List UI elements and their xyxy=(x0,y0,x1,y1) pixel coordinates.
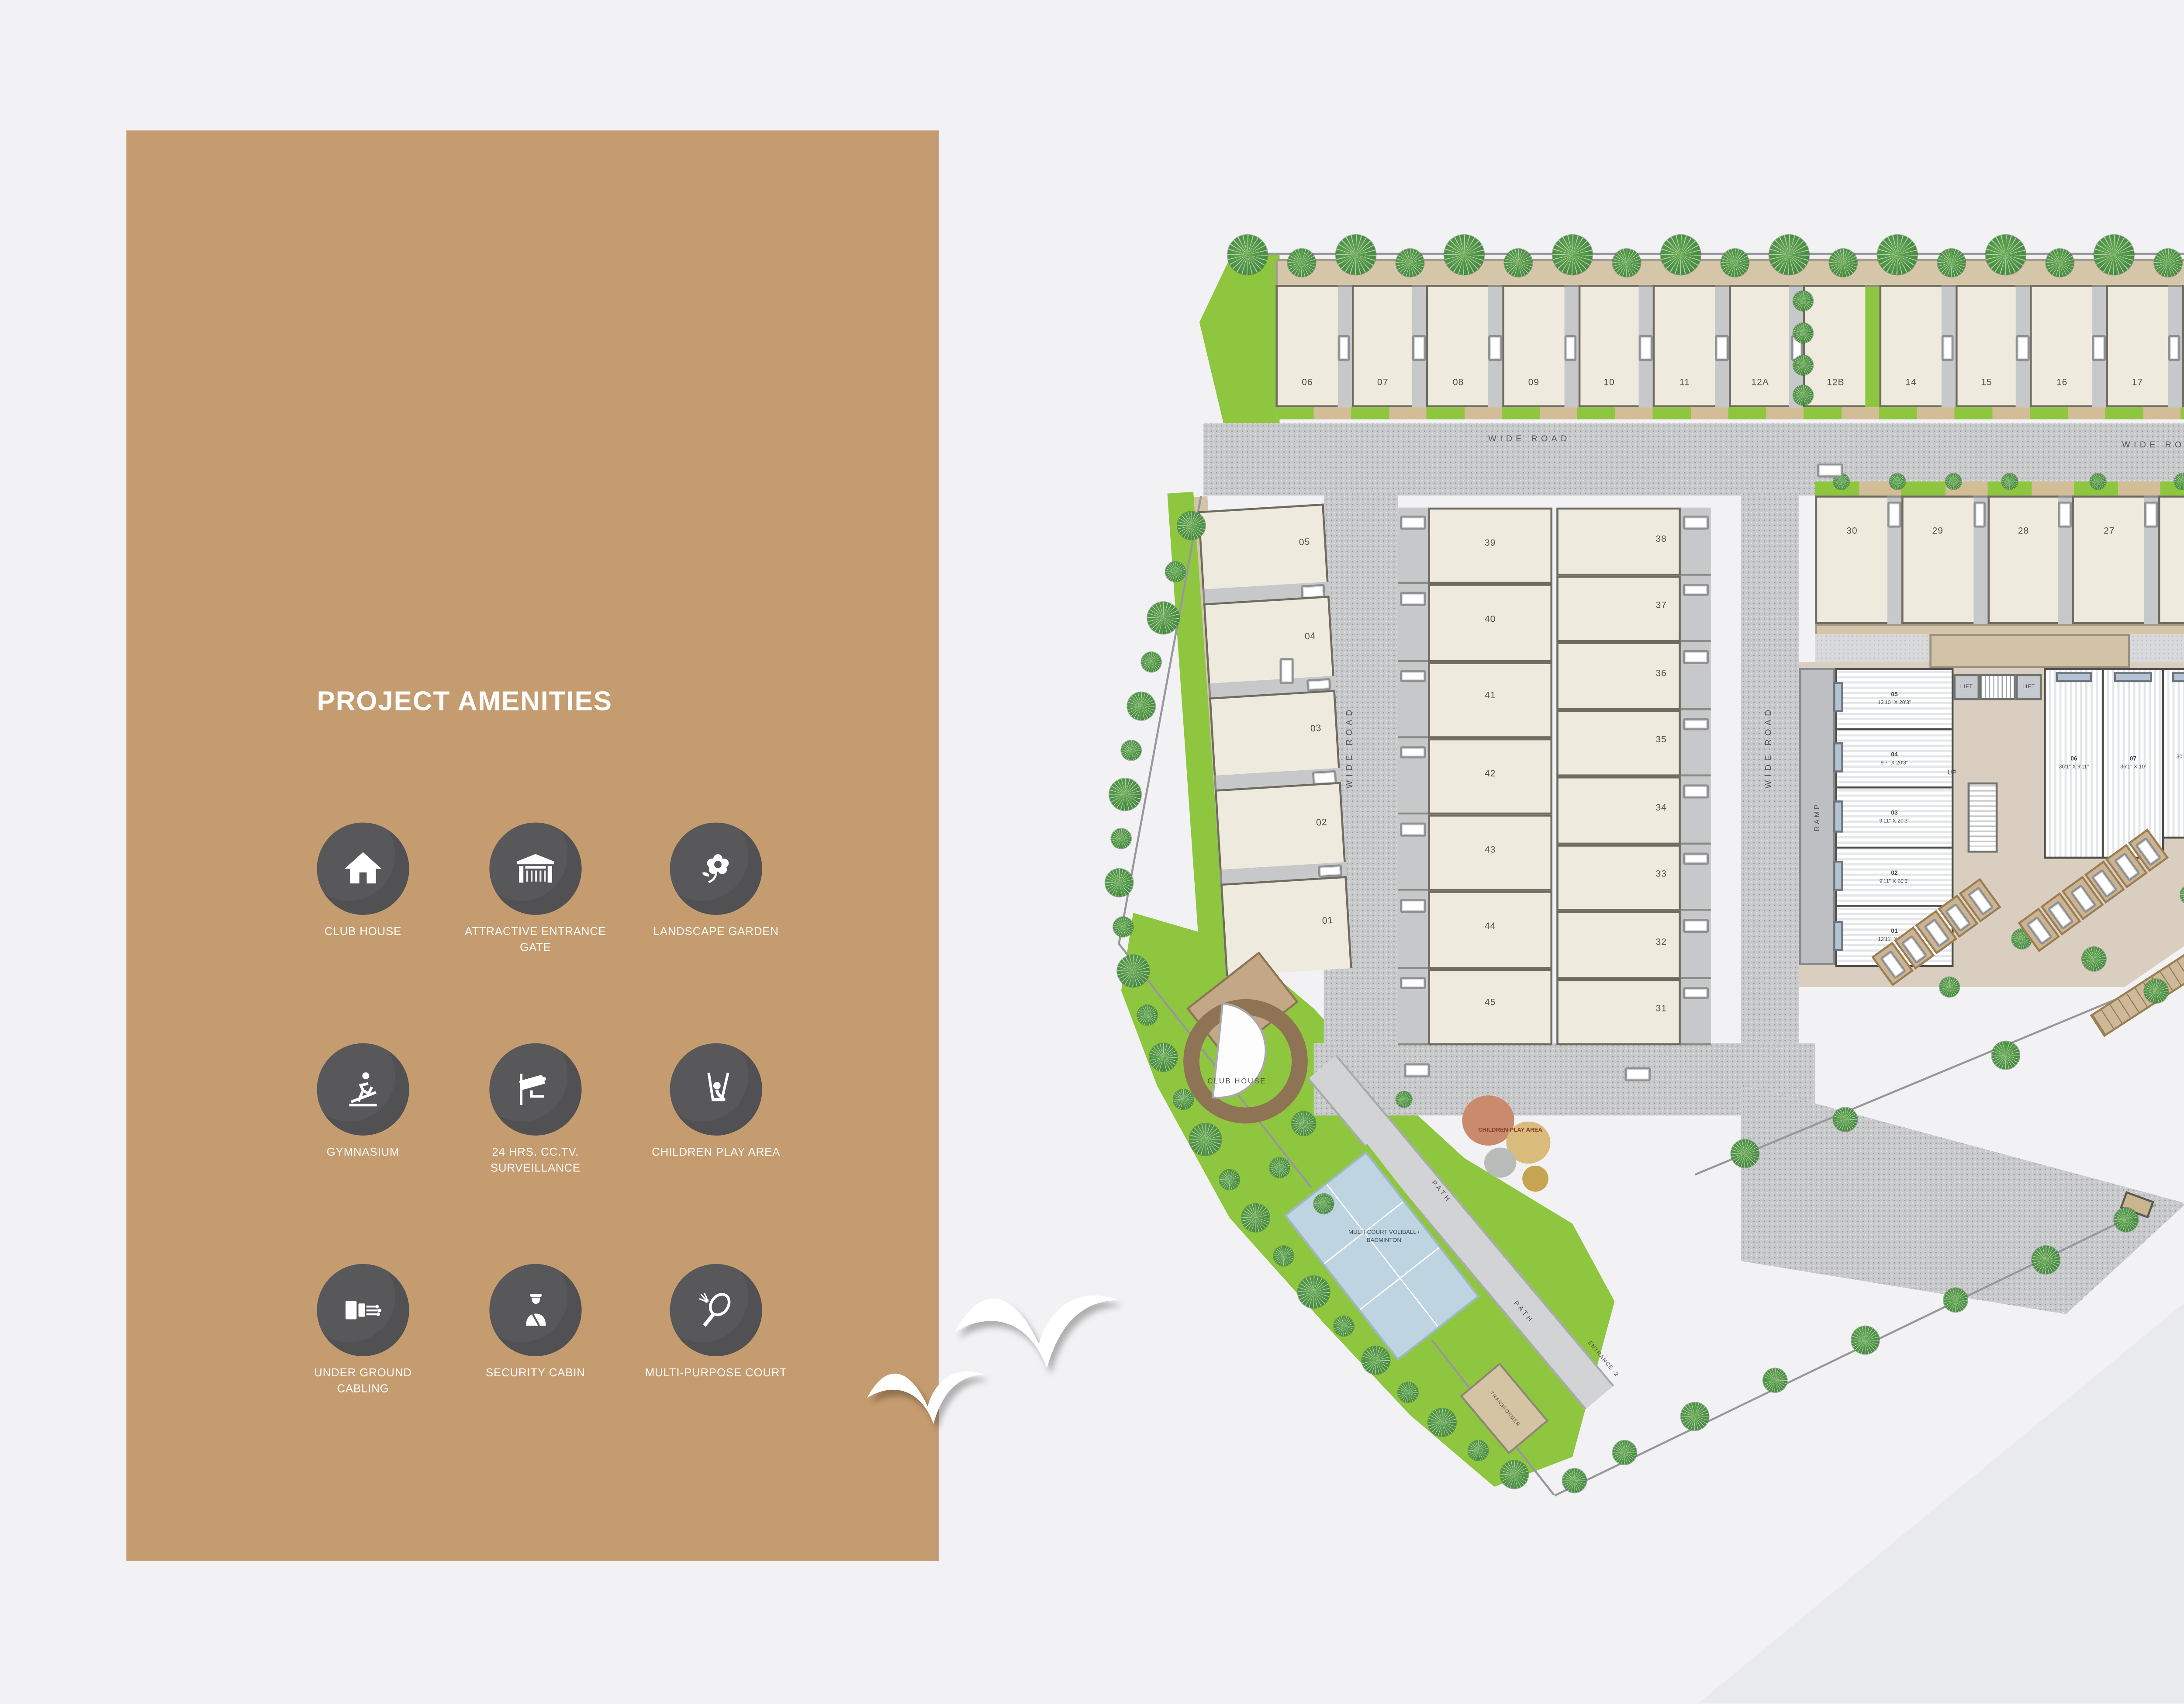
car-icon xyxy=(1280,658,1293,683)
tree-icon xyxy=(1992,1041,2020,1069)
play-surface xyxy=(1484,1148,1516,1178)
green-strip xyxy=(1199,255,1280,423)
driveway xyxy=(1973,495,1987,624)
tree-icon xyxy=(1113,917,1133,937)
rowhouse-unit: 30 xyxy=(1815,495,1901,624)
car-icon xyxy=(1400,977,1425,990)
unit-number: 32 xyxy=(1655,937,1666,947)
car-icon xyxy=(1683,516,1708,529)
tree-icon xyxy=(1833,1108,1857,1132)
car-icon xyxy=(2070,885,2095,913)
tree-icon xyxy=(1127,692,1155,720)
curb-strip xyxy=(1815,481,2184,495)
unit-number: 07 xyxy=(1353,377,1413,387)
tree-icon xyxy=(1189,1123,1221,1155)
shops-row: 06 36'1" X 9'11" 07 36'1" X 10' 08 30'5"… xyxy=(2044,668,2184,859)
rowhouse-unit: 14 xyxy=(1880,285,1955,407)
tree-icon xyxy=(2032,1246,2060,1274)
tree-icon xyxy=(1889,474,1905,490)
unit-number: 41 xyxy=(1430,691,1551,701)
shop-unit: 05 13'10" X 20'3" xyxy=(1837,670,1952,730)
staircase xyxy=(1980,674,2016,700)
shop-unit: 07 36'1" X 10' xyxy=(2104,668,2164,859)
rowhouse-unit: 39 xyxy=(1398,508,1552,585)
tree-icon xyxy=(2046,249,2074,277)
shop-dimension: 36'1" X 10' xyxy=(2107,765,2159,772)
car-icon xyxy=(1564,335,1577,360)
office-block xyxy=(1929,634,2130,668)
tree-icon xyxy=(1149,1043,1177,1071)
tree-icon xyxy=(1986,235,2026,275)
unit-number: 11 xyxy=(1655,377,1714,387)
car-icon xyxy=(2092,335,2105,360)
unit-number: 16 xyxy=(2032,377,2092,387)
tree-icon xyxy=(1336,235,1376,275)
driveway xyxy=(1941,285,1955,407)
rowhouse-unit: 42 xyxy=(1398,738,1552,815)
unit-number: 43 xyxy=(1430,845,1551,855)
tree-icon xyxy=(1661,235,1701,275)
unit-number: 04 xyxy=(1304,630,1316,641)
driveway xyxy=(1398,661,1428,738)
tree-icon xyxy=(2090,474,2106,490)
tree-icon xyxy=(1681,1403,1709,1430)
tree-icon xyxy=(1504,249,1532,277)
driveway xyxy=(1398,968,1428,1045)
driveway xyxy=(1488,285,1502,407)
shop-dimension: 13'10" X 20'3" xyxy=(1878,700,1911,707)
driveway xyxy=(2144,495,2158,624)
unit-number: 28 xyxy=(1989,526,2059,536)
rowhouse-unit: 45 xyxy=(1398,968,1552,1045)
unit-number: 08 xyxy=(1429,377,1488,387)
driveway xyxy=(1413,285,1427,407)
tree-icon xyxy=(1147,602,1179,634)
tree-icon xyxy=(1141,652,1161,672)
road-bottom xyxy=(1314,1043,1815,1115)
rowhouse-unit: 38 xyxy=(1556,508,1711,575)
rowhouse-unit: 32 xyxy=(1556,911,1711,978)
car-icon xyxy=(1946,903,1971,931)
tree-icon xyxy=(2002,474,2018,490)
driveway xyxy=(2167,285,2181,407)
shop-number: 06 xyxy=(2070,755,2077,763)
driveway xyxy=(2058,495,2072,624)
rowhouse-unit: 01 xyxy=(1220,875,1352,976)
tree-icon xyxy=(1721,249,1749,277)
rowhouse-unit: 37 xyxy=(1556,575,1711,642)
poster-canvas: PROJECT AMENITIES CLUB HOUSE ATTRACTIVE … xyxy=(0,0,2184,1703)
tree-icon xyxy=(1241,1204,1269,1232)
car-icon xyxy=(2017,335,2030,360)
unit-number: 05 xyxy=(1299,537,1310,548)
tree-icon xyxy=(1165,562,1185,582)
tree-icon xyxy=(1769,235,1809,275)
unit-number: 03 xyxy=(1310,723,1322,734)
tree-icon xyxy=(1117,955,1149,987)
tree-icon xyxy=(1793,355,1813,375)
tree-icon xyxy=(1288,249,1316,277)
tree-icon xyxy=(1731,1139,1759,1167)
driveway xyxy=(1887,495,1901,624)
car-icon xyxy=(1683,583,1708,596)
driveway xyxy=(1865,285,1879,407)
car-icon xyxy=(2114,853,2139,881)
unit-number: 38 xyxy=(1655,533,1666,544)
driveway xyxy=(1398,508,1428,585)
tree-icon xyxy=(2154,249,2182,277)
tree-icon xyxy=(1111,828,1131,849)
rowhouse-unit: 07 xyxy=(1351,285,1427,407)
shop-number: 02 xyxy=(1891,868,1897,876)
tree-icon xyxy=(2094,235,2134,275)
driveway xyxy=(1681,642,1711,709)
lift-lobby: LIFT LIFT xyxy=(1953,674,2042,700)
driveway xyxy=(1681,508,1711,575)
tree-icon xyxy=(1946,474,1962,490)
tree-icon xyxy=(1793,323,1813,343)
shop-dimension: 9'11" X 20'3" xyxy=(1880,878,1910,885)
tree-icon xyxy=(1220,1170,1240,1190)
club-house-label: CLUB HOUSE xyxy=(1207,1077,1266,1085)
tree-icon xyxy=(1851,1326,1879,1354)
rowhouse-unit: 11 xyxy=(1653,285,1728,407)
car-icon xyxy=(1488,335,1501,360)
tree-icon xyxy=(1292,1112,1316,1136)
site-plan: 06 07 08 09 10 xyxy=(0,0,2184,1703)
rowhouse-unit: 26 xyxy=(2158,495,2184,624)
rowhouse-unit: 02 xyxy=(1215,783,1347,883)
tree-icon xyxy=(1314,1194,1334,1214)
unit-number: 37 xyxy=(1655,601,1666,611)
shop-number: 05 xyxy=(1891,690,1897,698)
car-icon xyxy=(1683,717,1708,731)
car-icon xyxy=(1683,852,1708,865)
tree-icon xyxy=(1109,779,1141,810)
tree-icon xyxy=(1105,869,1133,897)
rowhouse-unit: 41 xyxy=(1398,661,1552,738)
car-icon xyxy=(2167,335,2181,360)
driveway xyxy=(1398,892,1428,969)
unit-number: 36 xyxy=(1655,668,1666,678)
rowhouse-column-mid-right: 38 37 36 35 34 xyxy=(1556,508,1711,1046)
rowhouse-unit: 44 xyxy=(1398,892,1552,969)
driveway xyxy=(1681,709,1711,776)
rowhouse-unit: 36 xyxy=(1556,642,1711,709)
unit-number: 42 xyxy=(1430,768,1551,778)
unit-number: 15 xyxy=(1957,377,2016,387)
unit-number: 44 xyxy=(1430,921,1551,931)
unit-number: 39 xyxy=(1430,537,1551,547)
car-icon xyxy=(1413,335,1426,360)
tree-icon xyxy=(2114,1208,2138,1232)
rowhouse-unit: 28 xyxy=(1987,495,2072,624)
car-icon xyxy=(1683,784,1708,797)
rowhouse-column-mid-left: 39 40 41 42 43 xyxy=(1398,508,1552,1046)
tree-icon xyxy=(1500,1461,1528,1489)
rowhouse-unit: 17 xyxy=(2106,285,2181,407)
car-icon xyxy=(1400,669,1425,682)
unit-number: 40 xyxy=(1430,614,1551,624)
road-label: WIDE ROAD xyxy=(1763,706,1773,788)
boundary-line xyxy=(1240,253,2184,254)
road-label: WIDE ROAD xyxy=(1344,706,1354,788)
unit-number: 10 xyxy=(1579,377,1639,387)
driveway xyxy=(1681,575,1711,642)
driveway xyxy=(1681,844,1711,911)
car-icon xyxy=(1624,1067,1649,1081)
tree-icon xyxy=(1829,249,1857,277)
car-icon xyxy=(1400,592,1425,606)
tree-icon xyxy=(1552,235,1593,275)
rowhouse-unit: 06 xyxy=(1275,285,1351,407)
car-icon xyxy=(1400,900,1425,913)
unit-number: 27 xyxy=(2074,526,2144,536)
driveway xyxy=(1398,815,1428,892)
transformer-label: TRANSFORMER xyxy=(1488,1390,1521,1427)
rowhouse-unit: 04 xyxy=(1203,596,1335,697)
car-icon xyxy=(1404,1063,1429,1077)
tree-icon xyxy=(1274,1246,1294,1266)
tree-icon xyxy=(1613,1441,1637,1465)
rowhouse-unit: 40 xyxy=(1398,585,1552,662)
tree-icon xyxy=(1444,235,1484,275)
car-icon xyxy=(1817,464,1842,477)
car-icon xyxy=(2059,502,2072,526)
play-surface xyxy=(1522,1166,1548,1192)
car-icon xyxy=(1924,919,1949,947)
lift-cell: LIFT xyxy=(2016,674,2042,700)
tree-icon xyxy=(1398,1382,1418,1403)
unit-number: 12B xyxy=(1806,377,1865,387)
tree-icon xyxy=(1763,1368,1787,1392)
rowhouse-unit: 31 xyxy=(1556,978,1711,1046)
unit-number: 29 xyxy=(1903,526,1973,536)
curb-strip xyxy=(1275,407,2184,419)
tree-icon xyxy=(1270,1157,1290,1178)
shop-number: 07 xyxy=(2130,755,2136,763)
car-icon xyxy=(1973,502,1986,526)
shop-unit: 04 9'7" X 20'3" xyxy=(1837,730,1952,789)
unit-number: 01 xyxy=(1322,914,1334,925)
tree-icon xyxy=(1298,1276,1330,1308)
unit-number: 17 xyxy=(2108,377,2167,387)
rowhouse-unit: 34 xyxy=(1556,776,1711,844)
road-label: WIDE ROAD xyxy=(2122,440,2184,450)
driveway xyxy=(1714,285,1728,407)
rowhouse-unit: 18 xyxy=(2181,285,2184,407)
tree-icon xyxy=(2082,947,2106,971)
driveway xyxy=(1337,285,1351,407)
car-icon xyxy=(1683,986,1708,999)
unit-number: 45 xyxy=(1430,998,1551,1008)
driveway xyxy=(1681,911,1711,978)
shop-dimension: 9'11" X 20'3" xyxy=(1880,819,1910,826)
car-icon xyxy=(1941,335,1954,360)
shop-unit: 02 9'11" X 20'3" xyxy=(1837,848,1952,907)
tree-icon xyxy=(1943,1288,1967,1312)
rowhouse-unit: 29 xyxy=(1901,495,1987,624)
unit-number: 34 xyxy=(1655,803,1666,813)
car-icon xyxy=(1887,502,1901,526)
shop-number: 01 xyxy=(1891,928,1897,935)
car-icon xyxy=(1400,746,1425,759)
unit-number: 02 xyxy=(1316,816,1327,827)
unit-number: 09 xyxy=(1504,377,1563,387)
rowhouse-unit: 16 xyxy=(2030,285,2106,407)
rowhouse-unit: 35 xyxy=(1556,709,1711,776)
driveway xyxy=(1681,776,1711,844)
car-icon xyxy=(1400,516,1425,529)
rowhouse-unit: 12B xyxy=(1804,285,1880,407)
rowhouse-unit: 12A xyxy=(1728,285,1804,407)
unit-number: 26 xyxy=(2160,526,2184,536)
tree-icon xyxy=(1137,1005,1158,1025)
rowhouse-unit: 09 xyxy=(1502,285,1578,407)
children-play-area-label: CHILDREN PLAY AREA xyxy=(1470,1126,1551,1134)
tree-icon xyxy=(1938,249,1966,277)
car-icon xyxy=(1683,919,1708,932)
rowhouse-strip-top: 06 07 08 09 10 xyxy=(1275,285,2184,407)
tree-icon xyxy=(1334,1316,1354,1336)
car-icon xyxy=(1683,650,1708,663)
tree-icon xyxy=(1362,1346,1390,1374)
road-label: WIDE ROAD xyxy=(1488,433,1570,443)
shop-number: 03 xyxy=(1891,809,1897,817)
shop-unit: 03 9'11" X 20'3" xyxy=(1837,789,1952,848)
multipurpose-court-label: MULTI COURT VOLIBALL / BADMINTON xyxy=(1340,1228,1428,1244)
driveway xyxy=(1681,978,1711,1046)
tree-icon xyxy=(1227,235,1268,275)
tree-icon xyxy=(2144,979,2168,1003)
unit-number: 14 xyxy=(1881,377,1941,387)
rowhouse-unit: 10 xyxy=(1577,285,1653,407)
car-icon xyxy=(1400,823,1425,836)
unit-number: 30 xyxy=(1817,526,1887,536)
lift-cell: LIFT xyxy=(1953,674,1980,700)
shop-dimension: 9'7" X 20'3" xyxy=(1880,760,1908,767)
shop-number: 04 xyxy=(1891,750,1897,758)
basement-ramp: RAMP xyxy=(1799,668,1835,965)
car-icon xyxy=(1639,335,1652,360)
rowhouse-unit: 27 xyxy=(2072,495,2158,624)
rowhouse-unit: 03 xyxy=(1209,689,1341,790)
driveway xyxy=(1398,738,1428,815)
tree-icon xyxy=(1428,1408,1456,1436)
rowhouse-unit: 43 xyxy=(1398,815,1552,892)
tree-icon xyxy=(1177,512,1205,540)
unit-number: 35 xyxy=(1655,735,1666,745)
car-icon xyxy=(1901,935,1927,963)
car-icon xyxy=(1715,335,1728,360)
tree-icon xyxy=(1396,1091,1412,1108)
shop-unit: 08 30'5" X 10' xyxy=(2164,668,2184,838)
tree-icon xyxy=(1793,385,1813,405)
unit-number: 06 xyxy=(1278,377,1337,387)
shop-unit: 06 36'1" X 9'11" xyxy=(2044,668,2104,859)
rowhouse-unit: 33 xyxy=(1556,844,1711,911)
road-southeast xyxy=(1741,1084,2184,1314)
up-staircase xyxy=(1968,783,1998,853)
car-icon xyxy=(1337,335,1351,360)
rowhouse-strip-second: 30 29 28 27 26 xyxy=(1815,495,2184,624)
shop-dimension: 30'5" X 10' xyxy=(2167,755,2184,762)
tree-icon xyxy=(1396,249,1424,277)
tree-icon xyxy=(1562,1468,1586,1493)
shop-dimension: 36'1" X 9'11" xyxy=(2049,765,2099,772)
rowhouse-unit: 08 xyxy=(1427,285,1502,407)
tree-icon xyxy=(1939,977,1959,997)
tree-icon xyxy=(1877,235,1918,275)
driveway xyxy=(2016,285,2030,407)
tree-icon xyxy=(1121,740,1141,760)
tree-icon xyxy=(1173,1089,1193,1109)
driveway xyxy=(1398,585,1428,662)
rowhouse-unit: 05 xyxy=(1198,504,1330,604)
tree-icon xyxy=(1793,291,1813,311)
unit-number: 12A xyxy=(1731,377,1790,387)
tree-icon xyxy=(1613,249,1641,277)
car-icon xyxy=(2048,900,2073,928)
driveway xyxy=(1563,285,1577,407)
tree-icon xyxy=(1468,1441,1488,1461)
driveway xyxy=(2092,285,2106,407)
unit-number: 31 xyxy=(1655,1004,1666,1014)
car-icon xyxy=(2092,869,2117,897)
unit-number: 33 xyxy=(1655,869,1666,880)
car-icon xyxy=(2145,502,2158,526)
up-label: UP xyxy=(1948,769,1957,776)
ramp-label: RAMP xyxy=(1813,802,1821,831)
driveway xyxy=(1639,285,1653,407)
rowhouse-unit: 15 xyxy=(1955,285,2030,407)
